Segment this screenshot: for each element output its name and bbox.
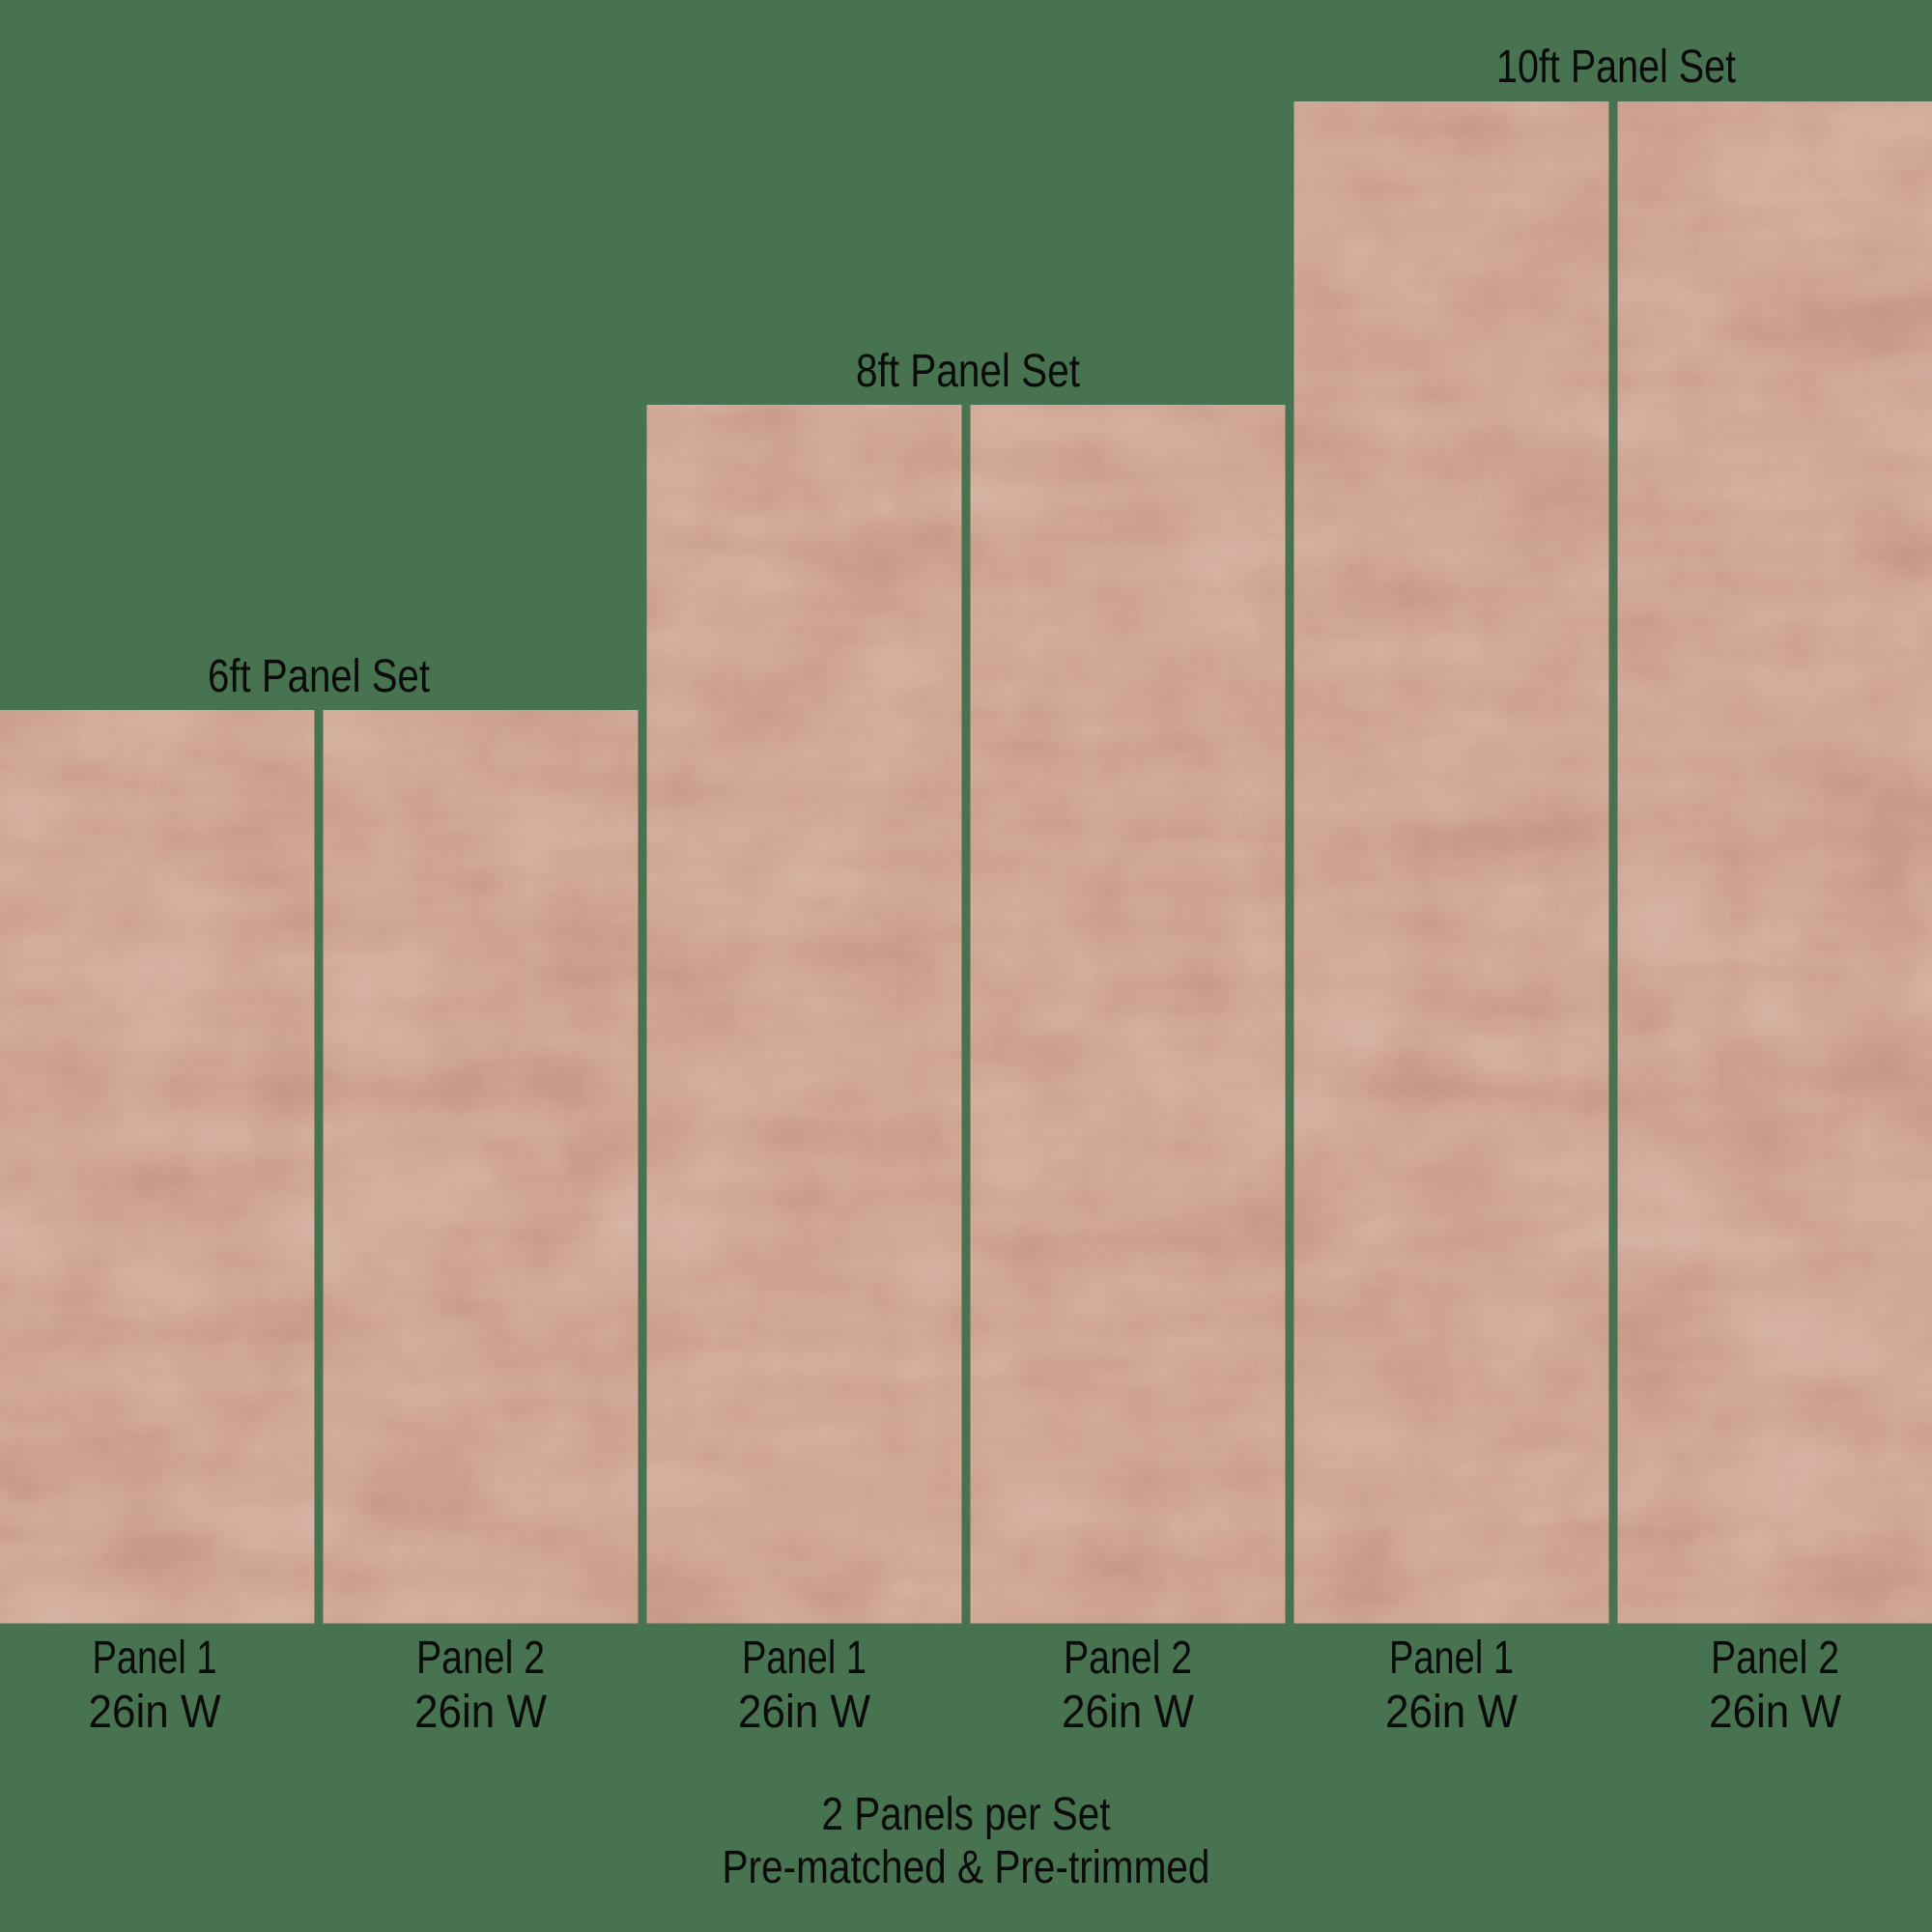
svg-text:26in W: 26in W (738, 1687, 871, 1738)
svg-text:Panel 2: Panel 2 (416, 1633, 545, 1684)
svg-text:2 Panels per Set: 2 Panels per Set (822, 1789, 1111, 1840)
svg-text:6ft Panel Set: 6ft Panel Set (208, 651, 430, 702)
svg-text:26in W: 26in W (414, 1687, 548, 1738)
svg-text:26in W: 26in W (1709, 1687, 1842, 1738)
svg-text:Panel 2: Panel 2 (1064, 1633, 1192, 1684)
svg-text:26in W: 26in W (1062, 1687, 1195, 1738)
svg-text:Panel 1: Panel 1 (742, 1633, 867, 1684)
svg-text:10ft Panel Set: 10ft Panel Set (1496, 42, 1736, 93)
svg-text:Pre-matched & Pre-trimmed: Pre-matched & Pre-trimmed (723, 1842, 1210, 1893)
svg-text:26in W: 26in W (89, 1687, 222, 1738)
svg-text:8ft Panel Set: 8ft Panel Set (856, 346, 1080, 397)
svg-text:Panel 1: Panel 1 (93, 1633, 217, 1684)
svg-text:Panel 1: Panel 1 (1389, 1633, 1514, 1684)
svg-text:26in W: 26in W (1385, 1687, 1519, 1738)
svg-text:Panel 2: Panel 2 (1711, 1633, 1839, 1684)
